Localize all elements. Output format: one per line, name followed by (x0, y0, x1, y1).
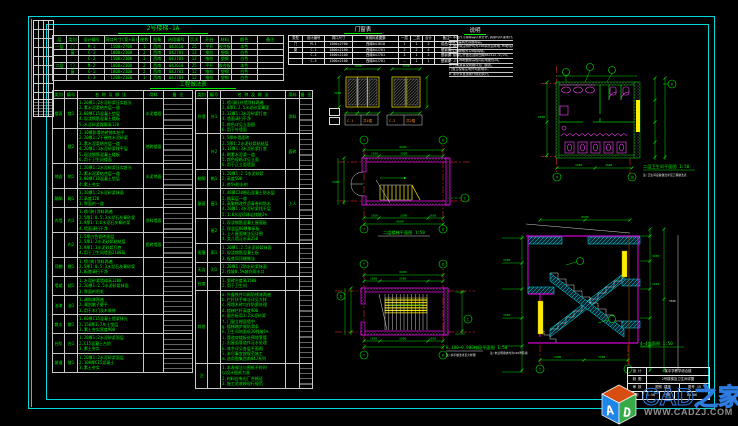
window2-count: 共2樘 (406, 118, 416, 123)
titleblock-sheet-name: 2号楼梯及卫生间详图 (647, 376, 709, 383)
materials-group-row: 勒脚勒11.20厚1:2.5水泥砂浆2.高度5003.掺5%防水剂 (196, 169, 313, 188)
materials-group-row: 散水散11.60厚C15混凝土提浆抹光2.150厚3:7灰土垫层3.素土夯实宽度… (53, 315, 193, 334)
materials-group-row: 楼面楼11.20厚1:2水泥砂浆压实赶光2.素水泥浆结合层一道3.60厚C15混… (53, 99, 193, 129)
window1-width-dim: 1800 (354, 64, 361, 68)
stairplan-wall-right (444, 288, 448, 335)
dim: 3300 (400, 214, 407, 218)
plan-wall-right (446, 158, 450, 205)
dim: 3300 (399, 337, 406, 341)
window2-tag: C-2 (389, 119, 395, 123)
grid-bubble-label: D (671, 82, 673, 86)
grid-bubble-label: 7 (539, 367, 541, 371)
materials-group-row: 屋面屋11.40厚C20细石混凝土防水层2.隔离层一道3.高聚物改性沥青卷材防水… (196, 189, 313, 219)
binding-strip-grid (33, 20, 54, 100)
scalloped-partition (561, 134, 627, 136)
materials-table-b: 类别编号名 称 及 做 法用料备 注外墙外11.喷(刷)外墙涂料两遍2.6厚1:… (195, 90, 313, 389)
grid-bubble-label: C (464, 196, 466, 200)
dim: 6600 (399, 270, 406, 274)
mop-sink (560, 106, 568, 115)
dim: 3300 (605, 163, 612, 167)
toilet-wall-bottom (556, 155, 637, 158)
binding-strip-grid-dense (33, 99, 54, 117)
toilet-wall-left (556, 82, 559, 158)
window2-width-dim: 1500 (402, 64, 409, 68)
materials-group-row: 外21.5厚外墙面砖2.5厚1:2水泥砂浆粘结层3.12厚1:3水泥砂浆打底4.… (196, 134, 313, 169)
window1-tag: C-1 (347, 119, 353, 123)
right-landing-lower (622, 321, 640, 328)
toilet-plan-note: 注:卫生间设备做法详见工程做法表 (643, 173, 687, 177)
stair-section-drawing: 3300 3300 6600 1650 1650 3300 3 (488, 205, 703, 380)
door-window-title: 门窗表 (344, 25, 382, 34)
grid-bubble-label: 7 (363, 262, 365, 266)
grid-bubble-label: C (467, 317, 469, 321)
grid-bubble-label: 9 (556, 175, 558, 179)
window-height-dim: 2100 (334, 91, 341, 95)
dim: 6600 (581, 215, 588, 219)
materials-group-row: 其他a.外露铁件均刷防锈漆两遍b.栏杆扶手做法详见大样c.预埋木砖均作防腐处理d… (196, 290, 313, 363)
stall-doors (609, 92, 629, 100)
materials-group-row: 地面地11.20厚1:2水泥砂浆压实赶光2.素水泥浆结合层一道3.80厚C10混… (53, 164, 193, 189)
materials-group-row: 坡道坡11.20厚1:2水泥砂浆面层2.100厚C15混凝土3.素土夯实 (53, 353, 193, 372)
materials-group-row: 楼21.10厚防滑地砖铺实拍平2.20厚1:2干硬性水泥砂浆3.素水泥浆结合层一… (53, 129, 193, 164)
materials-group-row: 踢脚踢11.20厚1:2水泥砂浆抹面2.高度1203.界面剂一道 (53, 189, 193, 208)
left-column-yellow (538, 301, 543, 334)
cadzj-logo-icon: A D (597, 382, 641, 426)
materials-group-row: 内21.5厚白色瓷砖面层2.5厚1:2水泥砂浆粘结层3.9厚1:3水泥砂浆打底4… (53, 232, 193, 257)
grid-bubble-label: D (340, 294, 342, 298)
dim: 1650 (429, 337, 436, 341)
materials-group-row: 内墙内11.喷(刷)涂料两遍2.5厚1:0.5:3水泥石灰膏砂浆3.9厚1:1:… (53, 208, 193, 233)
grid-bubble-label: 8 (442, 262, 444, 266)
materials-title: 工程做法表 (150, 80, 236, 89)
plan1-label: 二层楼梯平面图 1:50 (383, 229, 425, 236)
header-row: 层类别设计编号洞口尺寸(宽×高)樘数图集选用编号页次开启材料颜色备注 (53, 36, 284, 44)
grid-bubble-label: 8 (442, 227, 444, 231)
materials-group-row: 雨篷雨11.20厚1:2.5水泥砂浆抹面2.现浇钢筋混凝土板3.板底同顶棚做法 (196, 243, 313, 262)
dim: 1650 (371, 152, 378, 156)
section-label: 4—4剖面图 1:50 (640, 340, 673, 347)
plan-depth-dim: 3300 (332, 180, 339, 184)
materials-group-row: 注1.本表做法与图纸不符时 以设计图纸为准2.材料应有出厂合格证3.施工验收按现… (196, 363, 313, 388)
dim: 1650 (652, 254, 659, 258)
toilet-plan-drawing: 3300 3300 6600 D 9 10 二层卫生间平面图 1:50 注:卫生… (535, 58, 705, 183)
schedule-title: 2号楼梯-1A (118, 23, 208, 34)
materials-table-a: 类别编号名 称 及 做 法用料备 注楼面楼11.20厚1:2水泥砂浆压实赶光2.… (52, 90, 193, 373)
materials-group-row: 墙裙裙11.水泥砂浆墙裙高12002.20厚1:2.5水泥砂浆抹面3.界面剂甩毛 (53, 276, 193, 295)
materials-group-row: 外墙外11.喷(刷)外墙涂料两遍2.6厚1:2.5水泥砂浆罩面3.12厚1:3水… (196, 99, 313, 134)
stair-treads (380, 185, 420, 200)
plan-width-dim: 6600 (399, 145, 406, 149)
dim: 3300 (669, 299, 676, 303)
stairplan-wall-bottom (361, 331, 448, 335)
materials-group-row: 顶棚棚11.喷(刷)涂料两遍2.5厚1:0.5:3水泥石灰膏砂浆3.板底清扫干净 (53, 257, 193, 276)
toilet-wall-top (556, 82, 637, 85)
mid-landing-left (528, 287, 554, 294)
dim: 3300 (554, 355, 561, 359)
floor-plan-drawing: 7 8 6600 1650 3300 3300 C 1650 3300 1650… (330, 128, 478, 240)
floor-drain (562, 126, 566, 130)
header-row: 类别编号名 称 及 做 法用料备 注 (196, 91, 313, 99)
grid-bubble-label: 8 (442, 138, 444, 142)
squat-pans (565, 142, 626, 153)
stair-flight-plan-drawing: 7 8 6600 1650 3300 D C 1650 3300 1650 7 … (325, 252, 485, 364)
table-row: C-31200×21001西南04J70112推拉塑钢白色 (53, 75, 284, 81)
cad-drawing-sheet: 2号楼梯-1A 工程做法表 门窗表 说明 层类别设计编号洞口尺寸(宽×高)樘数图… (0, 0, 738, 426)
sheet-border-double-line (31, 19, 32, 407)
dim: 1650 (429, 214, 436, 218)
stair-plan-note: 注:扶手做法详见大样图 (446, 353, 476, 357)
notes-title: 说明 (464, 26, 486, 35)
logo-letter-d: D (622, 406, 632, 422)
titleblock-row: 设 计 某中学教学综合楼 (628, 368, 709, 376)
watermark-url-text: WWW.CADZJ.COM (644, 407, 733, 417)
door-window-schedule-table: 层类别设计编号洞口尺寸(宽×高)樘数图集选用编号页次开启材料颜色备注一层门M-1… (52, 35, 284, 81)
materials-group-row: 天沟沟11.20厚1:2防水砂浆抹面2.找坡0.5%坡向雨水口 (196, 262, 313, 276)
header-row: 类别编号名 称 及 做 法用料备 注 (53, 91, 193, 99)
dim: 3300 (503, 258, 510, 262)
materials-group-row: 台阶台11.20厚1:2水泥砂浆面层2.C15混凝土台阶3.素土夯实 (53, 334, 193, 353)
right-column-yellow (622, 251, 627, 277)
window-detail-elevations: 1800 1500 2100 C-1 共4樘 C-2 共2樘 (330, 58, 465, 130)
materials-group-row: 台度1.瓷砖台度高15002.用于卫生间 (196, 276, 313, 290)
grid-bubble-label: 8 (442, 353, 444, 357)
dim: 3300 (575, 163, 582, 167)
dim: 1650 (370, 337, 377, 341)
stairplan-wall-top (361, 288, 448, 292)
materials-group-row: 油漆油11.调和漆两遍2.满刮腻子磨平3.用于木门及木装修 (53, 296, 193, 315)
dim: 3300 (503, 313, 510, 317)
dim: 6600 (538, 115, 545, 119)
plan-wall-bottom (362, 201, 450, 205)
grid-bubble-label: 7 (363, 353, 365, 357)
right-landing-upper (622, 279, 640, 286)
dim: 1650 (371, 214, 378, 218)
materials-group-row: 屋21.现浇钢筋混凝土屋面板2.保温层80厚聚苯板3.上人屋面做法见详图4.女儿… (196, 219, 313, 244)
grid-bubble-label: 7 (363, 227, 365, 231)
plan-wall-top (362, 158, 450, 162)
section-note: 注:未注明墙体均为240厚砖墙 (490, 351, 528, 355)
dim: 3300 (598, 355, 605, 359)
toilet-duct-yellow (636, 100, 640, 132)
titleblock-project-name: 某中学教学综合楼 (647, 368, 709, 375)
grid-bubble-label: 7 (363, 138, 365, 142)
grid-bubble-label: 10 (630, 175, 634, 179)
top-slab-right (588, 237, 640, 244)
dim: 3300 (400, 152, 407, 156)
titleblock-design-label: 设 计 (628, 368, 647, 375)
double-door-swing (351, 172, 363, 196)
dim: 1650 (652, 282, 659, 286)
stair-landing-hatch (385, 298, 427, 313)
window1-count: 共4樘 (363, 118, 373, 123)
dim: 3300 (399, 277, 406, 281)
top-slab-left (528, 237, 562, 244)
toilet-plan-label: 二层卫生间平面图 1:50 (643, 163, 690, 170)
dim: 6600 (396, 220, 403, 224)
dim: 1650 (370, 277, 377, 281)
